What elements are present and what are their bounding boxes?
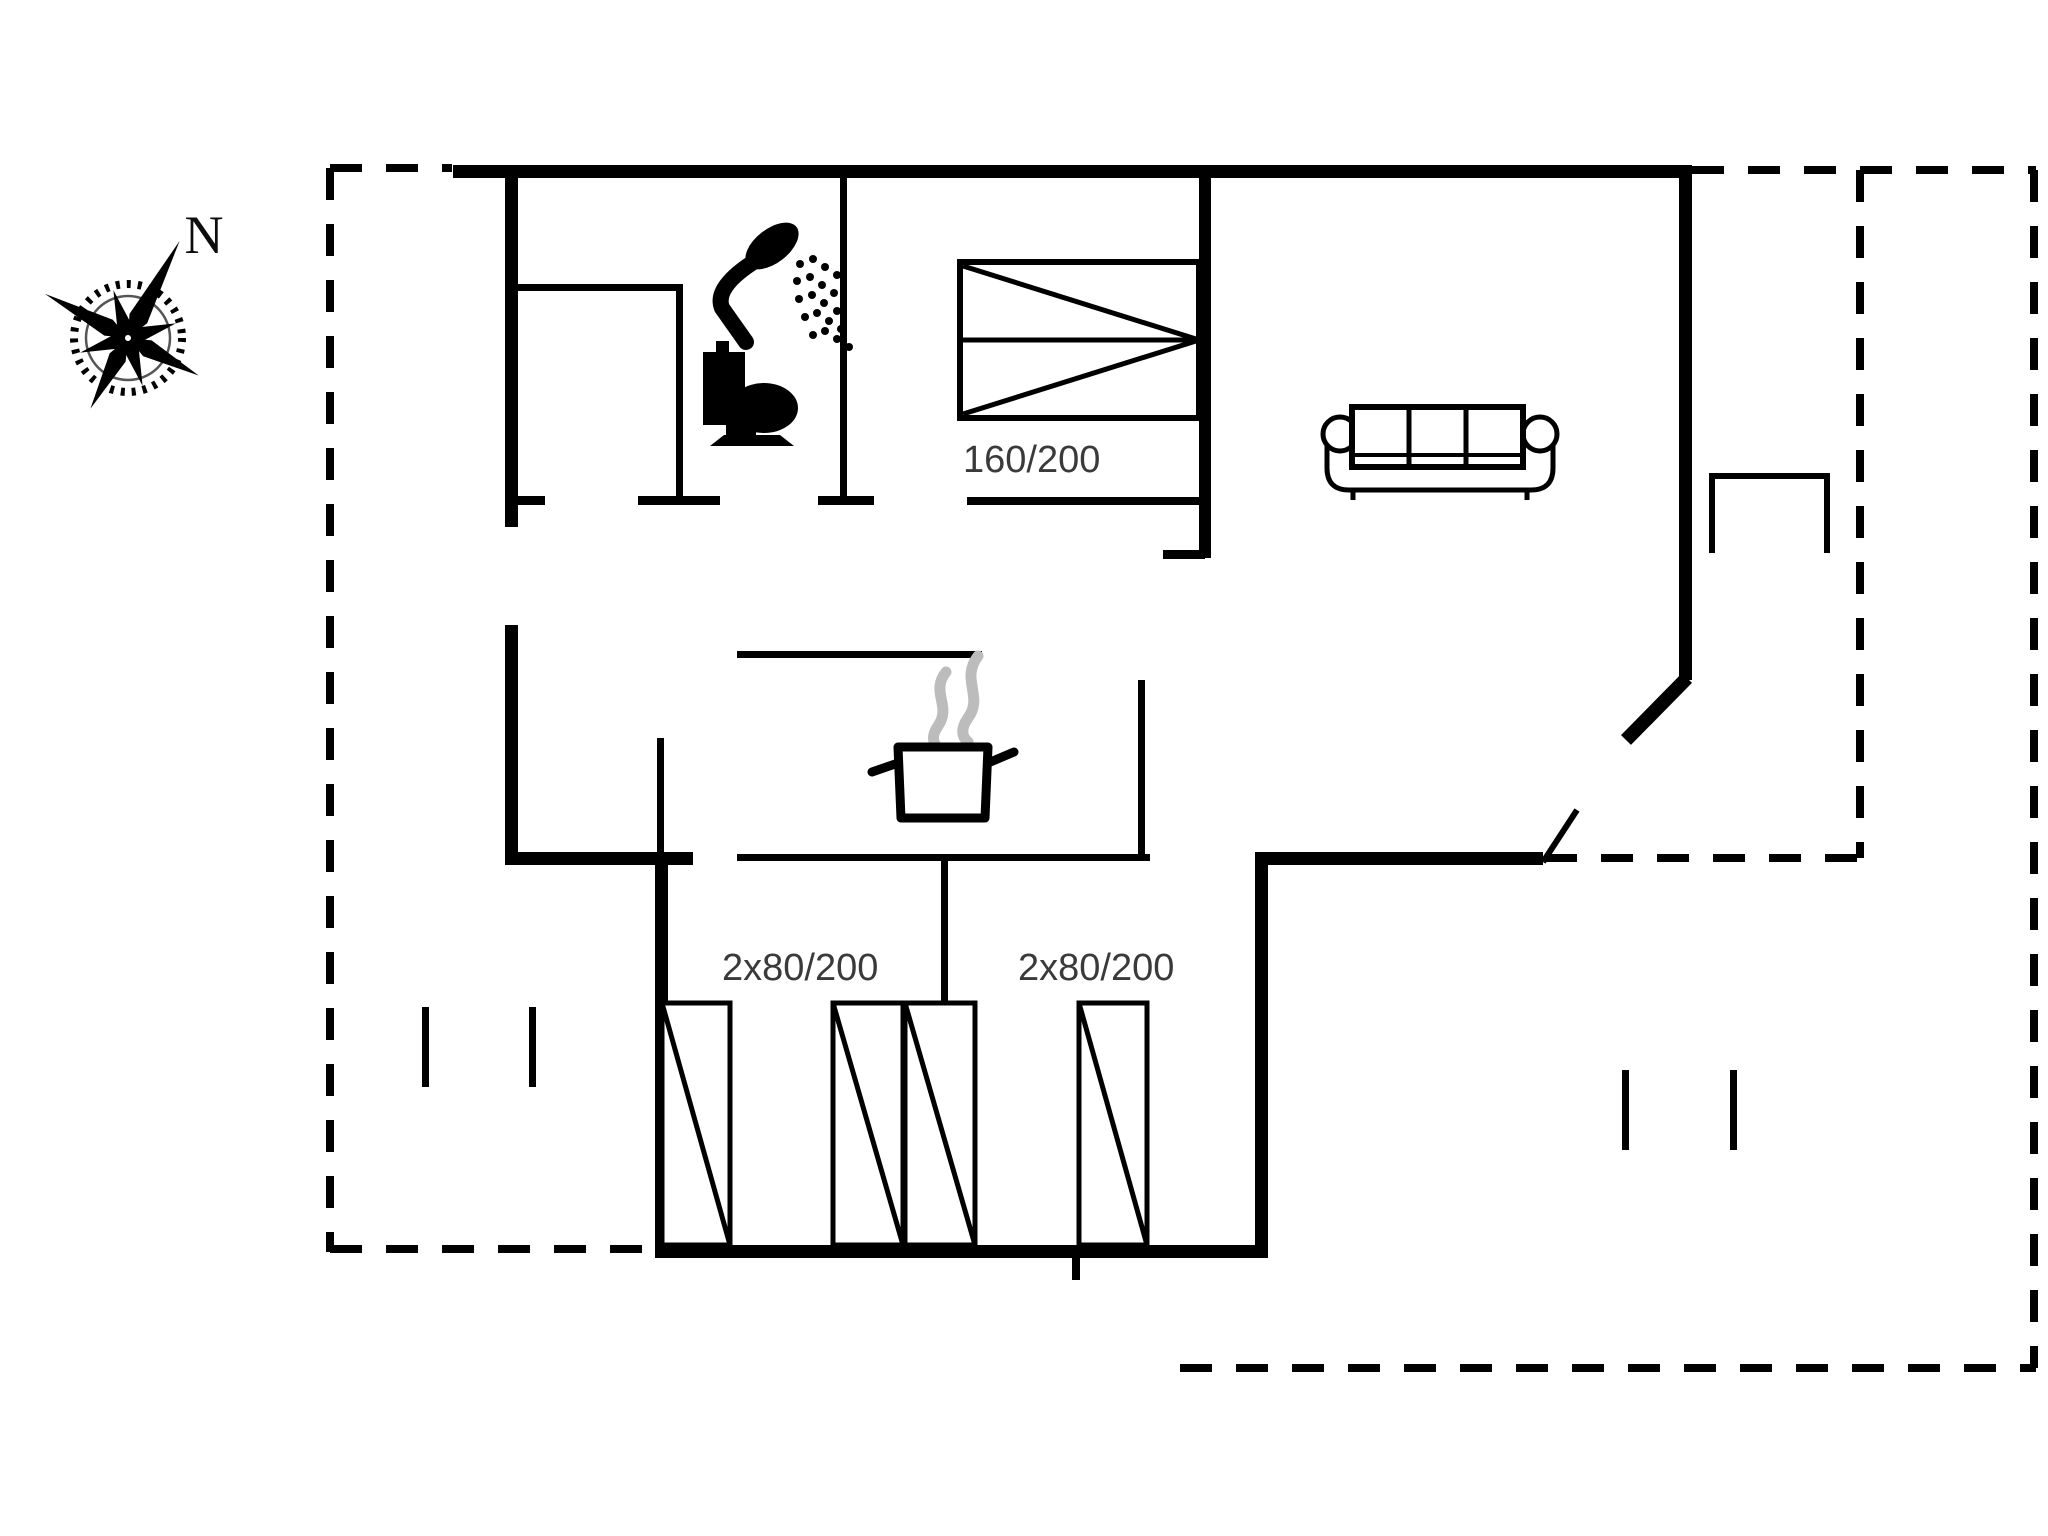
wardrobe-size-label: 2x80/200 bbox=[1018, 947, 1174, 989]
wall-kitchen-left-horizontal bbox=[505, 852, 693, 865]
wall-bathroom-right bbox=[840, 178, 847, 500]
wall-closet-right bbox=[676, 284, 683, 500]
wall-entry-vertical bbox=[505, 165, 518, 527]
bench-outline bbox=[1712, 476, 1827, 553]
wall-hall-vertical bbox=[1138, 680, 1145, 860]
wardrobe-icon bbox=[905, 1003, 975, 1245]
wall-top bbox=[453, 165, 1692, 178]
bed-size-label: 160/200 bbox=[963, 439, 1100, 481]
terrace-bench-icon bbox=[1712, 476, 1827, 553]
jamb-stub bbox=[1163, 550, 1205, 559]
wardrobes: 2x80/200 2x80/200 bbox=[662, 947, 1174, 1245]
north-label: N bbox=[185, 205, 224, 265]
double-bed-icon: 160/200 bbox=[960, 262, 1199, 481]
sofa-icon bbox=[1323, 407, 1557, 500]
post-tick bbox=[1730, 1070, 1737, 1150]
steam-icon bbox=[963, 656, 978, 742]
steam-icon bbox=[933, 672, 946, 747]
wall-closet-top bbox=[518, 284, 683, 291]
wardrobe-icon bbox=[1079, 1003, 1147, 1245]
shower-hose bbox=[721, 263, 752, 342]
jamb-stub bbox=[517, 496, 545, 505]
jamb-stub bbox=[1072, 1258, 1080, 1280]
wall-right bbox=[1679, 165, 1692, 680]
sofa-cushions bbox=[1352, 407, 1523, 467]
shower-icon bbox=[721, 214, 853, 351]
patio-door-leaf-thick bbox=[1626, 678, 1687, 740]
wardrobe-size-label: 2x80/200 bbox=[722, 947, 878, 989]
wardrobe-icon bbox=[662, 1003, 730, 1245]
floor-plan-canvas: N 160/200 bbox=[0, 0, 2048, 1536]
wall-kitchen-left-vertical bbox=[505, 625, 518, 865]
toilet-icon bbox=[703, 341, 798, 446]
wall-bedroom3-right bbox=[1255, 852, 1268, 1258]
cooking-pot-icon bbox=[872, 656, 1014, 818]
wall-bedroom1-bottom bbox=[967, 497, 1205, 505]
post-tick bbox=[422, 1007, 429, 1087]
pot-body bbox=[898, 747, 988, 818]
wall-kitchen-top bbox=[737, 651, 982, 658]
floor-plan-drawing: N 160/200 bbox=[0, 0, 2048, 1536]
wall-kitchen-left-thin bbox=[657, 738, 664, 855]
compass-rose-icon: N bbox=[7, 197, 250, 446]
wall-south-right-of-door bbox=[1255, 852, 1543, 865]
sofa-armrest-right bbox=[1523, 417, 1557, 451]
post-tick bbox=[529, 1007, 536, 1087]
jamb-stub bbox=[818, 496, 874, 505]
open-door-leaf-icon bbox=[1543, 678, 1687, 862]
post-tick bbox=[1622, 1070, 1629, 1150]
pot-handle-left bbox=[872, 763, 898, 772]
jamb-stub bbox=[638, 496, 720, 505]
wardrobe-icon bbox=[833, 1003, 903, 1245]
